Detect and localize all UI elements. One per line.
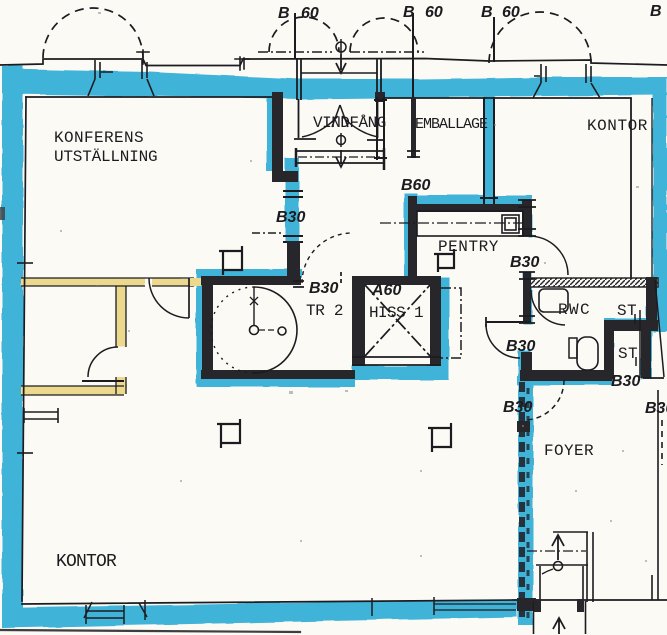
svg-text:UTSTÄLLNING: UTSTÄLLNING <box>54 147 157 166</box>
svg-text:A60: A60 <box>371 282 401 299</box>
svg-text:60: 60 <box>301 5 319 22</box>
svg-text:KONTOR: KONTOR <box>587 117 648 135</box>
svg-text:B30: B30 <box>276 209 305 226</box>
svg-text:EMBALLAGE: EMBALLAGE <box>415 116 488 133</box>
svg-text:B60: B60 <box>401 177 430 194</box>
svg-text:60: 60 <box>502 4 520 21</box>
svg-text:ST: ST <box>618 345 638 363</box>
svg-text:RWC: RWC <box>558 301 591 319</box>
svg-text:60: 60 <box>425 4 443 21</box>
svg-text:B30: B30 <box>611 373 640 390</box>
svg-text:KONTOR: KONTOR <box>56 552 117 572</box>
svg-text:B30: B30 <box>506 338 535 355</box>
svg-text:PENTRY: PENTRY <box>438 238 499 256</box>
svg-text:HISS 1: HISS 1 <box>369 304 423 322</box>
svg-text:VINDFÅNG: VINDFÅNG <box>313 114 386 132</box>
svg-text:KONFERENS: KONFERENS <box>54 129 144 147</box>
svg-text:B: B <box>403 4 415 21</box>
svg-text:B30: B30 <box>503 399 532 416</box>
svg-text:ST: ST <box>617 302 637 320</box>
svg-text:B: B <box>481 4 493 21</box>
svg-text:B30: B30 <box>645 400 667 417</box>
svg-text:FOYER: FOYER <box>544 442 594 460</box>
svg-text:B: B <box>650 3 662 20</box>
svg-text:B: B <box>278 5 290 22</box>
svg-text:B30: B30 <box>510 254 539 271</box>
svg-text:TR 2: TR 2 <box>306 302 343 320</box>
svg-text:B30: B30 <box>309 280 338 297</box>
